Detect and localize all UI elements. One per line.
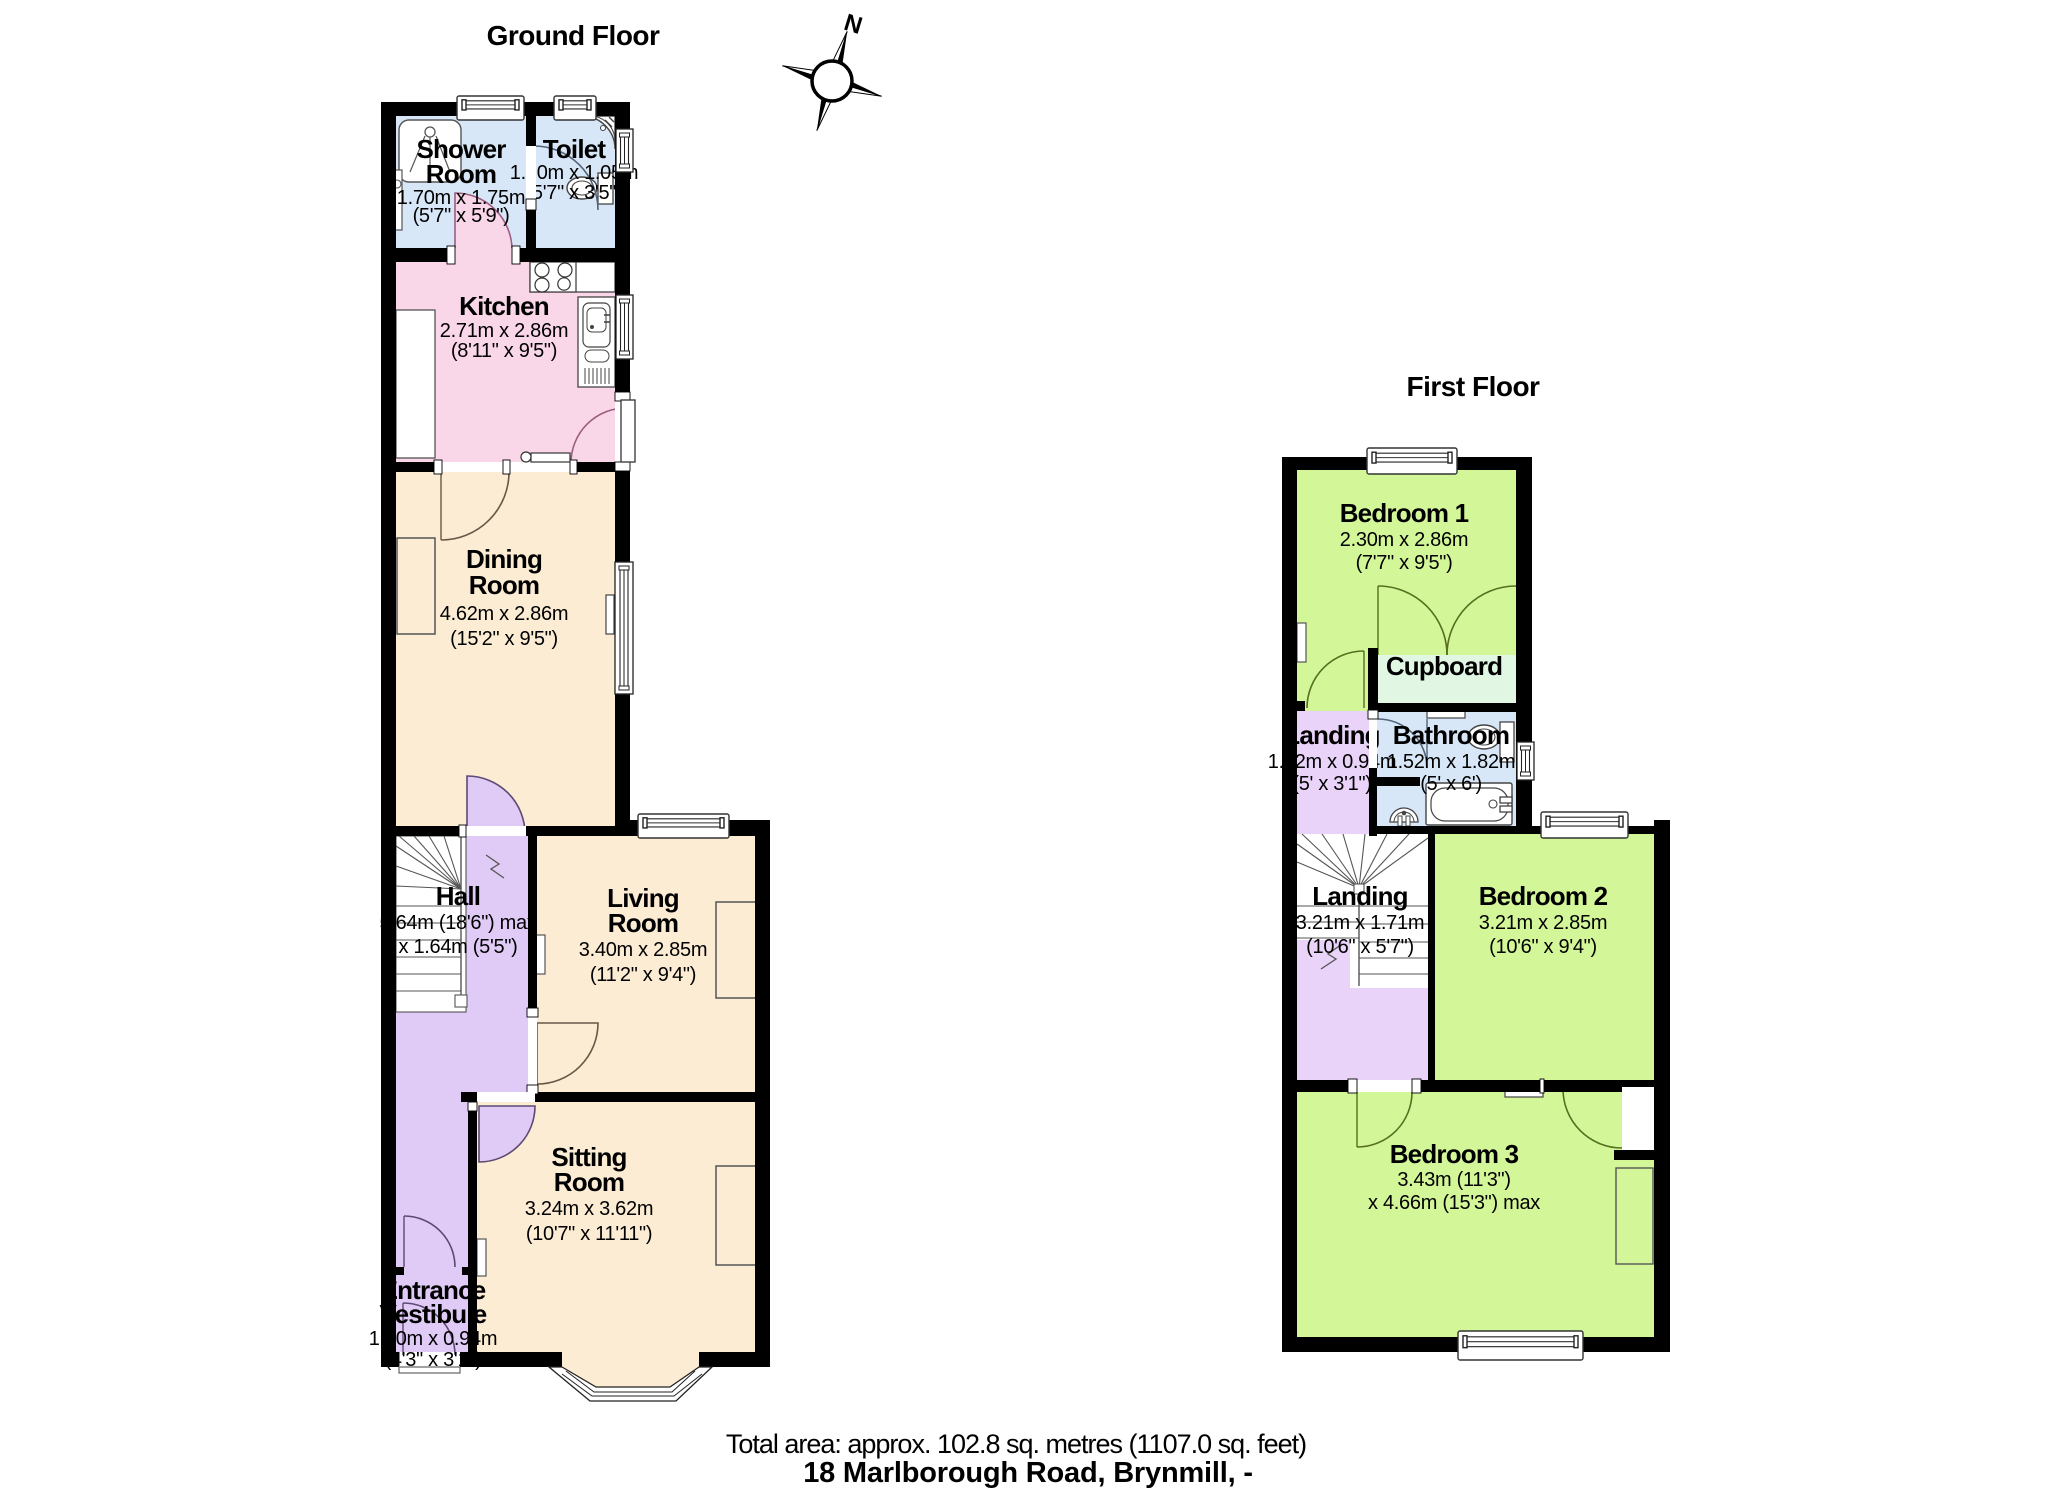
svg-text:Bedroom 3: Bedroom 3 bbox=[1390, 1139, 1519, 1169]
svg-text:5.64m (18'6") max: 5.64m (18'6") max bbox=[380, 912, 537, 934]
svg-text:Landing: Landing bbox=[1284, 720, 1380, 750]
svg-text:4.62m x 2.86m: 4.62m x 2.86m bbox=[440, 603, 568, 625]
svg-text:3.43m (11'3"): 3.43m (11'3") bbox=[1397, 1169, 1510, 1191]
svg-text:First Floor: First Floor bbox=[1407, 371, 1541, 402]
svg-text:Cupboard: Cupboard bbox=[1386, 651, 1502, 681]
svg-text:Kitchen: Kitchen bbox=[459, 291, 549, 321]
svg-text:x 1.64m (5'5"): x 1.64m (5'5") bbox=[399, 936, 518, 958]
svg-text:x 4.66m (15'3") max: x 4.66m (15'3") max bbox=[1368, 1192, 1540, 1214]
svg-text:(10'6" x 5'7"): (10'6" x 5'7") bbox=[1306, 936, 1414, 958]
svg-text:Toilet: Toilet bbox=[543, 134, 607, 164]
svg-text:Ground Floor: Ground Floor bbox=[487, 20, 660, 51]
svg-text:3.21m x 1.71m: 3.21m x 1.71m bbox=[1296, 912, 1424, 934]
svg-text:Total area: approx. 102.8 sq.: Total area: approx. 102.8 sq. metres (11… bbox=[726, 1429, 1306, 1459]
svg-text:2.71m x 2.86m: 2.71m x 2.86m bbox=[440, 320, 568, 342]
svg-text:Landing: Landing bbox=[1312, 881, 1408, 911]
svg-text:3.24m x 3.62m: 3.24m x 3.62m bbox=[525, 1198, 653, 1220]
svg-text:2.30m x 2.86m: 2.30m x 2.86m bbox=[1340, 529, 1468, 551]
svg-text:Room: Room bbox=[426, 159, 496, 189]
svg-text:(7'7" x 9'5"): (7'7" x 9'5") bbox=[1356, 552, 1453, 574]
svg-text:18 Marlborough Road, Brynmill,: 18 Marlborough Road, Brynmill, - bbox=[803, 1457, 1253, 1489]
svg-text:(5'7" x 5'9"): (5'7" x 5'9") bbox=[413, 205, 510, 227]
svg-text:(11'2" x 9'4"): (11'2" x 9'4") bbox=[590, 964, 696, 986]
svg-text:(5' x 3'1"): (5' x 3'1") bbox=[1292, 773, 1371, 795]
svg-text:1.52m x 1.82m: 1.52m x 1.82m bbox=[1387, 751, 1515, 773]
svg-text:Hall: Hall bbox=[436, 881, 480, 911]
svg-text:3.40m x 2.85m: 3.40m x 2.85m bbox=[579, 939, 707, 961]
svg-text:Room: Room bbox=[554, 1167, 624, 1197]
svg-text:3.21m x 2.85m: 3.21m x 2.85m bbox=[1479, 912, 1607, 934]
svg-text:Room: Room bbox=[608, 908, 678, 938]
svg-text:Bedroom 1: Bedroom 1 bbox=[1340, 498, 1469, 528]
svg-text:Bedroom 2: Bedroom 2 bbox=[1479, 881, 1608, 911]
svg-text:(10'7" x 11'11"): (10'7" x 11'11") bbox=[526, 1223, 652, 1245]
svg-text:Bathroom: Bathroom bbox=[1393, 720, 1509, 750]
svg-text:Room: Room bbox=[469, 570, 539, 600]
svg-text:(15'2" x 9'5"): (15'2" x 9'5") bbox=[450, 628, 558, 650]
svg-text:(8'11" x 9'5"): (8'11" x 9'5") bbox=[451, 340, 557, 362]
svg-text:(5'7" x 3'5"): (5'7" x 3'5") bbox=[526, 182, 623, 204]
svg-text:(5' x 6'): (5' x 6') bbox=[1420, 773, 1482, 795]
svg-text:(10'6" x 9'4"): (10'6" x 9'4") bbox=[1489, 936, 1597, 958]
